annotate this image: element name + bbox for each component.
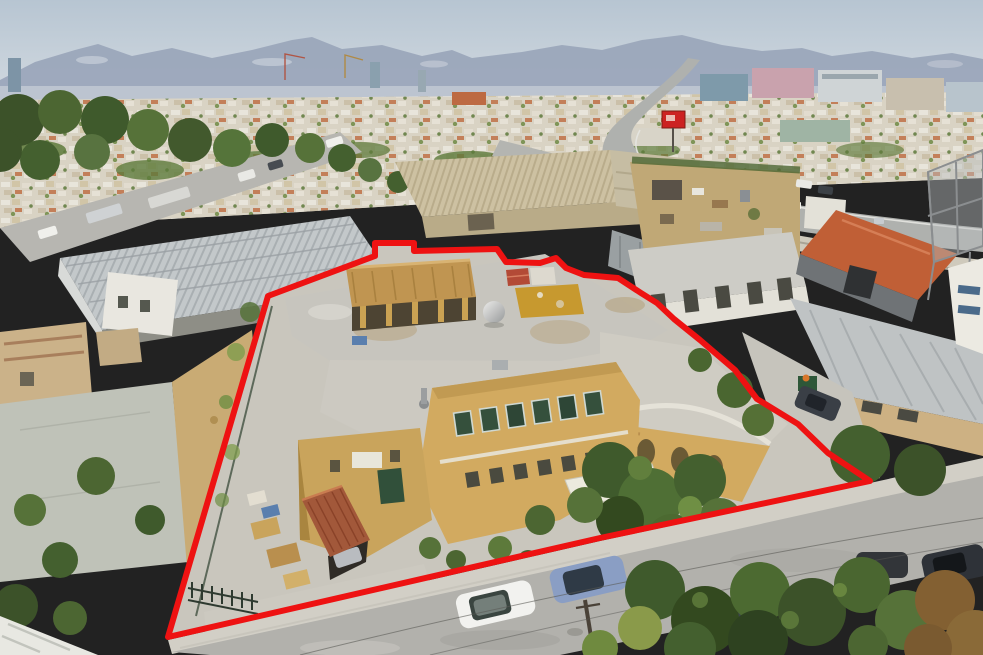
yellow-green-bush xyxy=(618,606,662,650)
white-shed xyxy=(530,267,556,285)
white-rooftop-box xyxy=(352,452,382,468)
blue-tarp-on-roof xyxy=(352,336,367,345)
mustard-skylight-box xyxy=(515,284,584,318)
aerial-photo: Aerial drone photo of a cream industrial… xyxy=(0,0,983,655)
green-roof-warehouse xyxy=(780,120,850,142)
red-roof-shed xyxy=(506,268,530,286)
green-roller-door xyxy=(376,467,406,506)
aerial-photo-canvas: Aerial drone photo of a cream industrial… xyxy=(0,0,983,655)
canopy-warehouse xyxy=(346,260,476,331)
spherical-water-tank xyxy=(483,301,505,323)
